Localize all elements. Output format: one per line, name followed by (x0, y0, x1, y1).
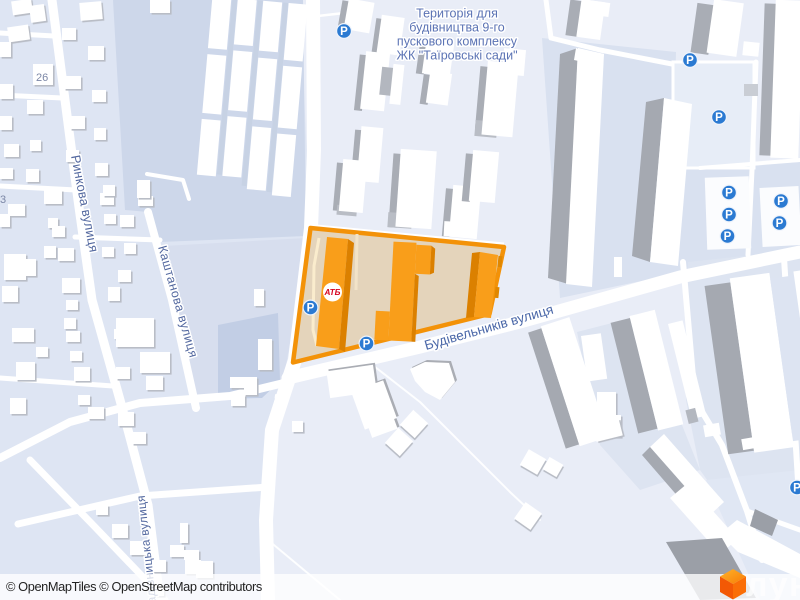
svg-text:Територія для: Територія для (416, 7, 498, 21)
svg-text:26: 26 (36, 72, 48, 84)
svg-text:3: 3 (0, 194, 6, 206)
svg-text:пускового комплексу: пускового комплексу (397, 35, 518, 49)
svg-text:будівництва 9-го: будівництва 9-го (409, 21, 505, 35)
svg-text:лун: лун (746, 566, 800, 600)
svg-text:© OpenMapTiles © OpenStreetMap: © OpenMapTiles © OpenStreetMap contribut… (6, 579, 262, 594)
svg-text:АТБ: АТБ (324, 288, 341, 297)
svg-text:ЖК "Таїровські сади": ЖК "Таїровські сади" (396, 49, 517, 63)
